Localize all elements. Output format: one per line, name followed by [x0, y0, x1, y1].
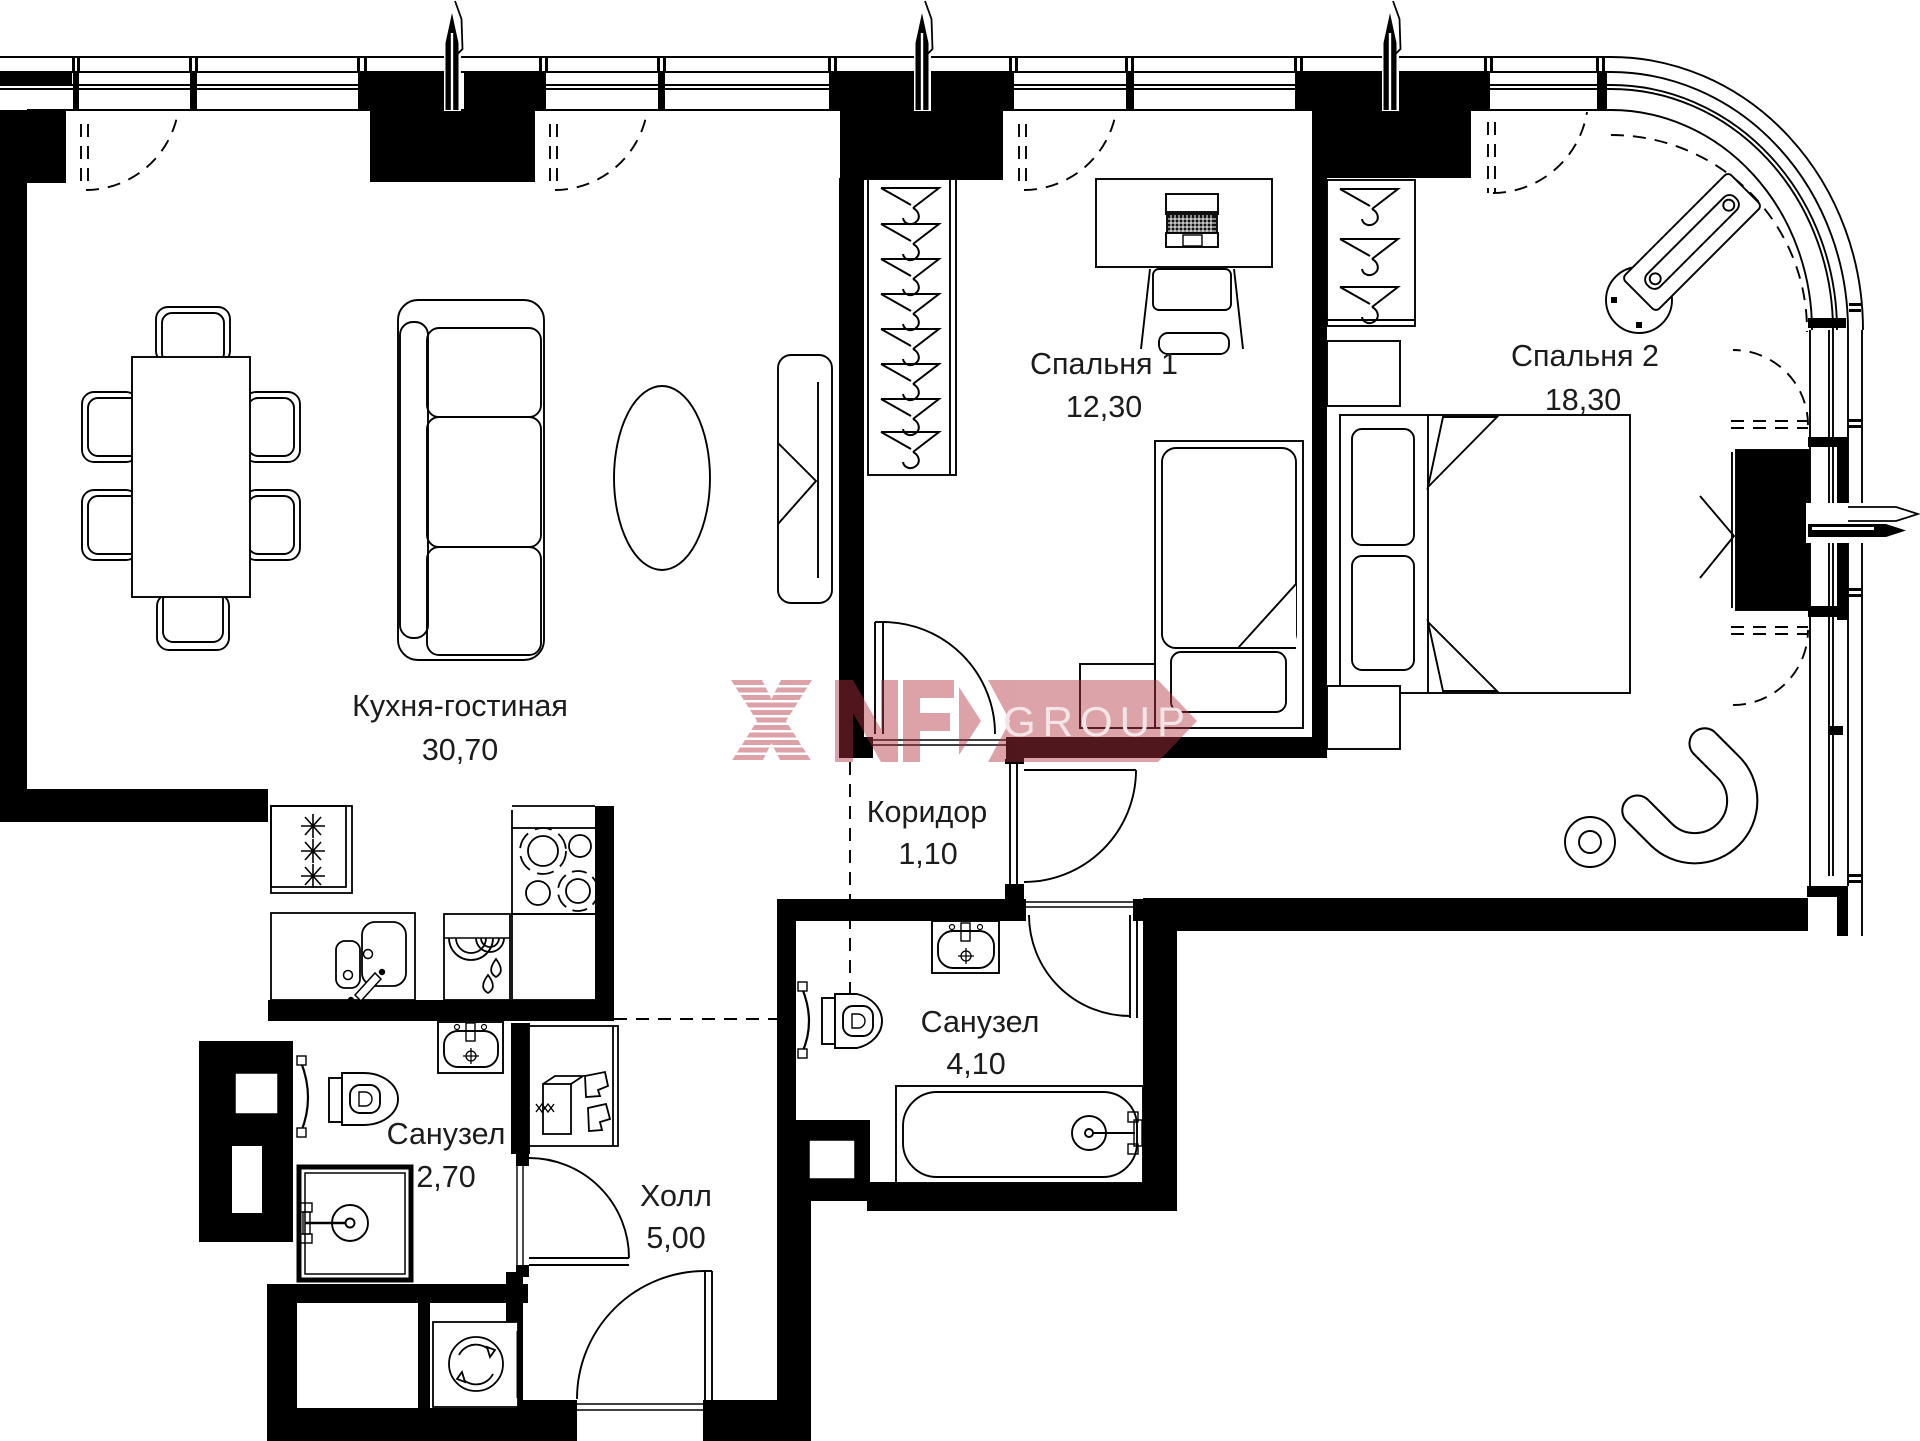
- svg-text:1,10: 1,10: [898, 837, 957, 871]
- svg-text:5,00: 5,00: [646, 1221, 705, 1255]
- svg-text:Холл: Холл: [640, 1179, 712, 1213]
- svg-text:12,30: 12,30: [1066, 390, 1142, 424]
- svg-text:2,70: 2,70: [416, 1160, 475, 1194]
- svg-text:Коридор: Коридор: [867, 795, 987, 829]
- svg-text:4,10: 4,10: [946, 1047, 1005, 1081]
- svg-text:Санузел: Санузел: [921, 1005, 1040, 1039]
- svg-text:GROUP: GROUP: [1003, 698, 1192, 745]
- svg-text:18,30: 18,30: [1545, 383, 1621, 417]
- svg-text:30,70: 30,70: [422, 733, 498, 767]
- svg-text:Спальня 2: Спальня 2: [1511, 339, 1659, 373]
- svg-text:Спальня 1: Спальня 1: [1030, 347, 1178, 381]
- svg-text:Кухня-гостиная: Кухня-гостиная: [352, 689, 568, 723]
- svg-text:Санузел: Санузел: [387, 1117, 506, 1151]
